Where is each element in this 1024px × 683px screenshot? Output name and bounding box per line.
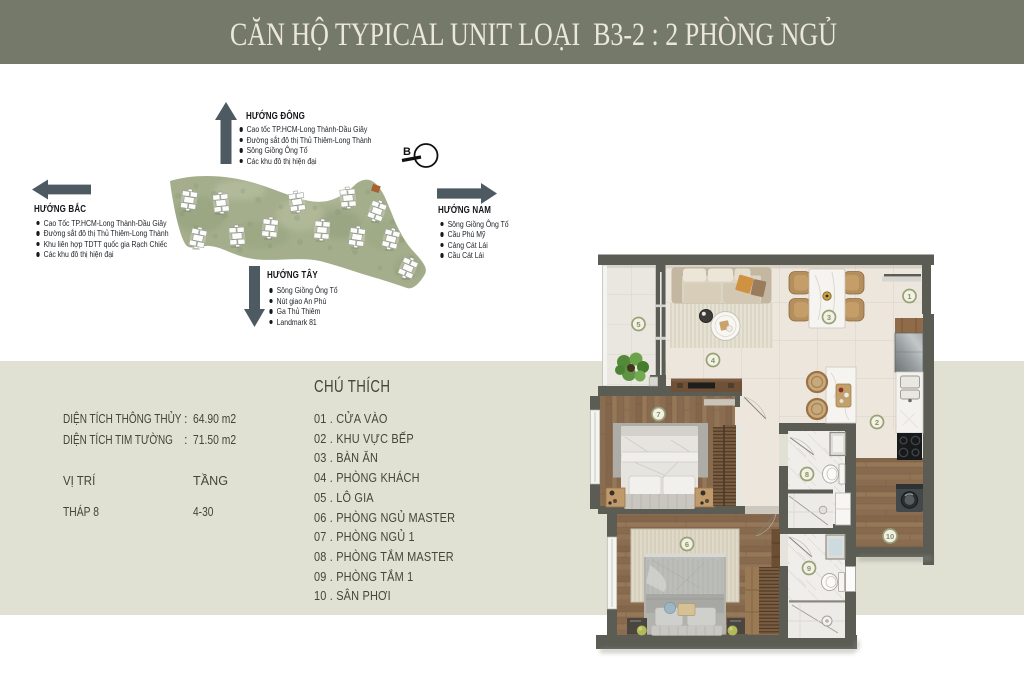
svg-text:6: 6 — [685, 540, 689, 549]
svg-text:8: 8 — [805, 470, 809, 479]
svg-text:B: B — [403, 146, 411, 158]
svg-text:10: 10 — [886, 532, 894, 541]
svg-text:1: 1 — [907, 292, 911, 301]
svg-text:2: 2 — [875, 418, 879, 427]
svg-text:5: 5 — [636, 320, 640, 329]
svg-text:3: 3 — [827, 313, 831, 322]
svg-text:7: 7 — [656, 410, 660, 419]
svg-text:9: 9 — [807, 564, 811, 573]
